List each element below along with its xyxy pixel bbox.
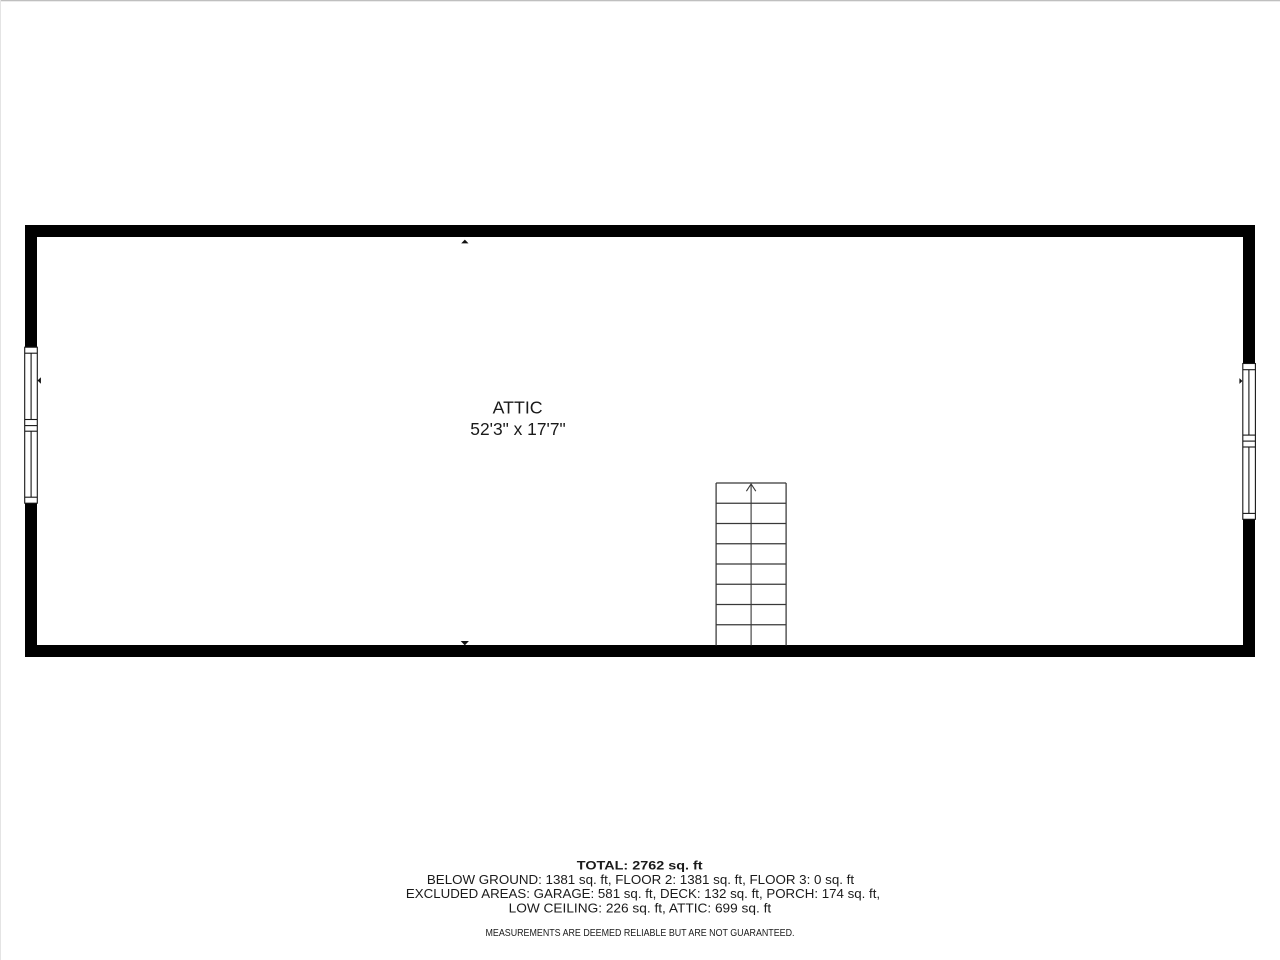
svg-text:TOTAL: 2762 sq. ft: TOTAL: 2762 sq. ft [577, 859, 703, 873]
svg-text:MEASUREMENTS ARE DEEMED RELIAB: MEASUREMENTS ARE DEEMED RELIABLE BUT ARE… [486, 928, 795, 939]
svg-text:LOW CEILING: 226 sq. ft, ATTIC: LOW CEILING: 226 sq. ft, ATTIC: 699 sq. … [509, 900, 772, 915]
svg-text:52'3" x 17'7": 52'3" x 17'7" [470, 420, 565, 439]
svg-text:ATTIC: ATTIC [493, 399, 543, 418]
svg-text:EXCLUDED AREAS: GARAGE: 581 sq: EXCLUDED AREAS: GARAGE: 581 sq. ft, DECK… [406, 886, 880, 901]
